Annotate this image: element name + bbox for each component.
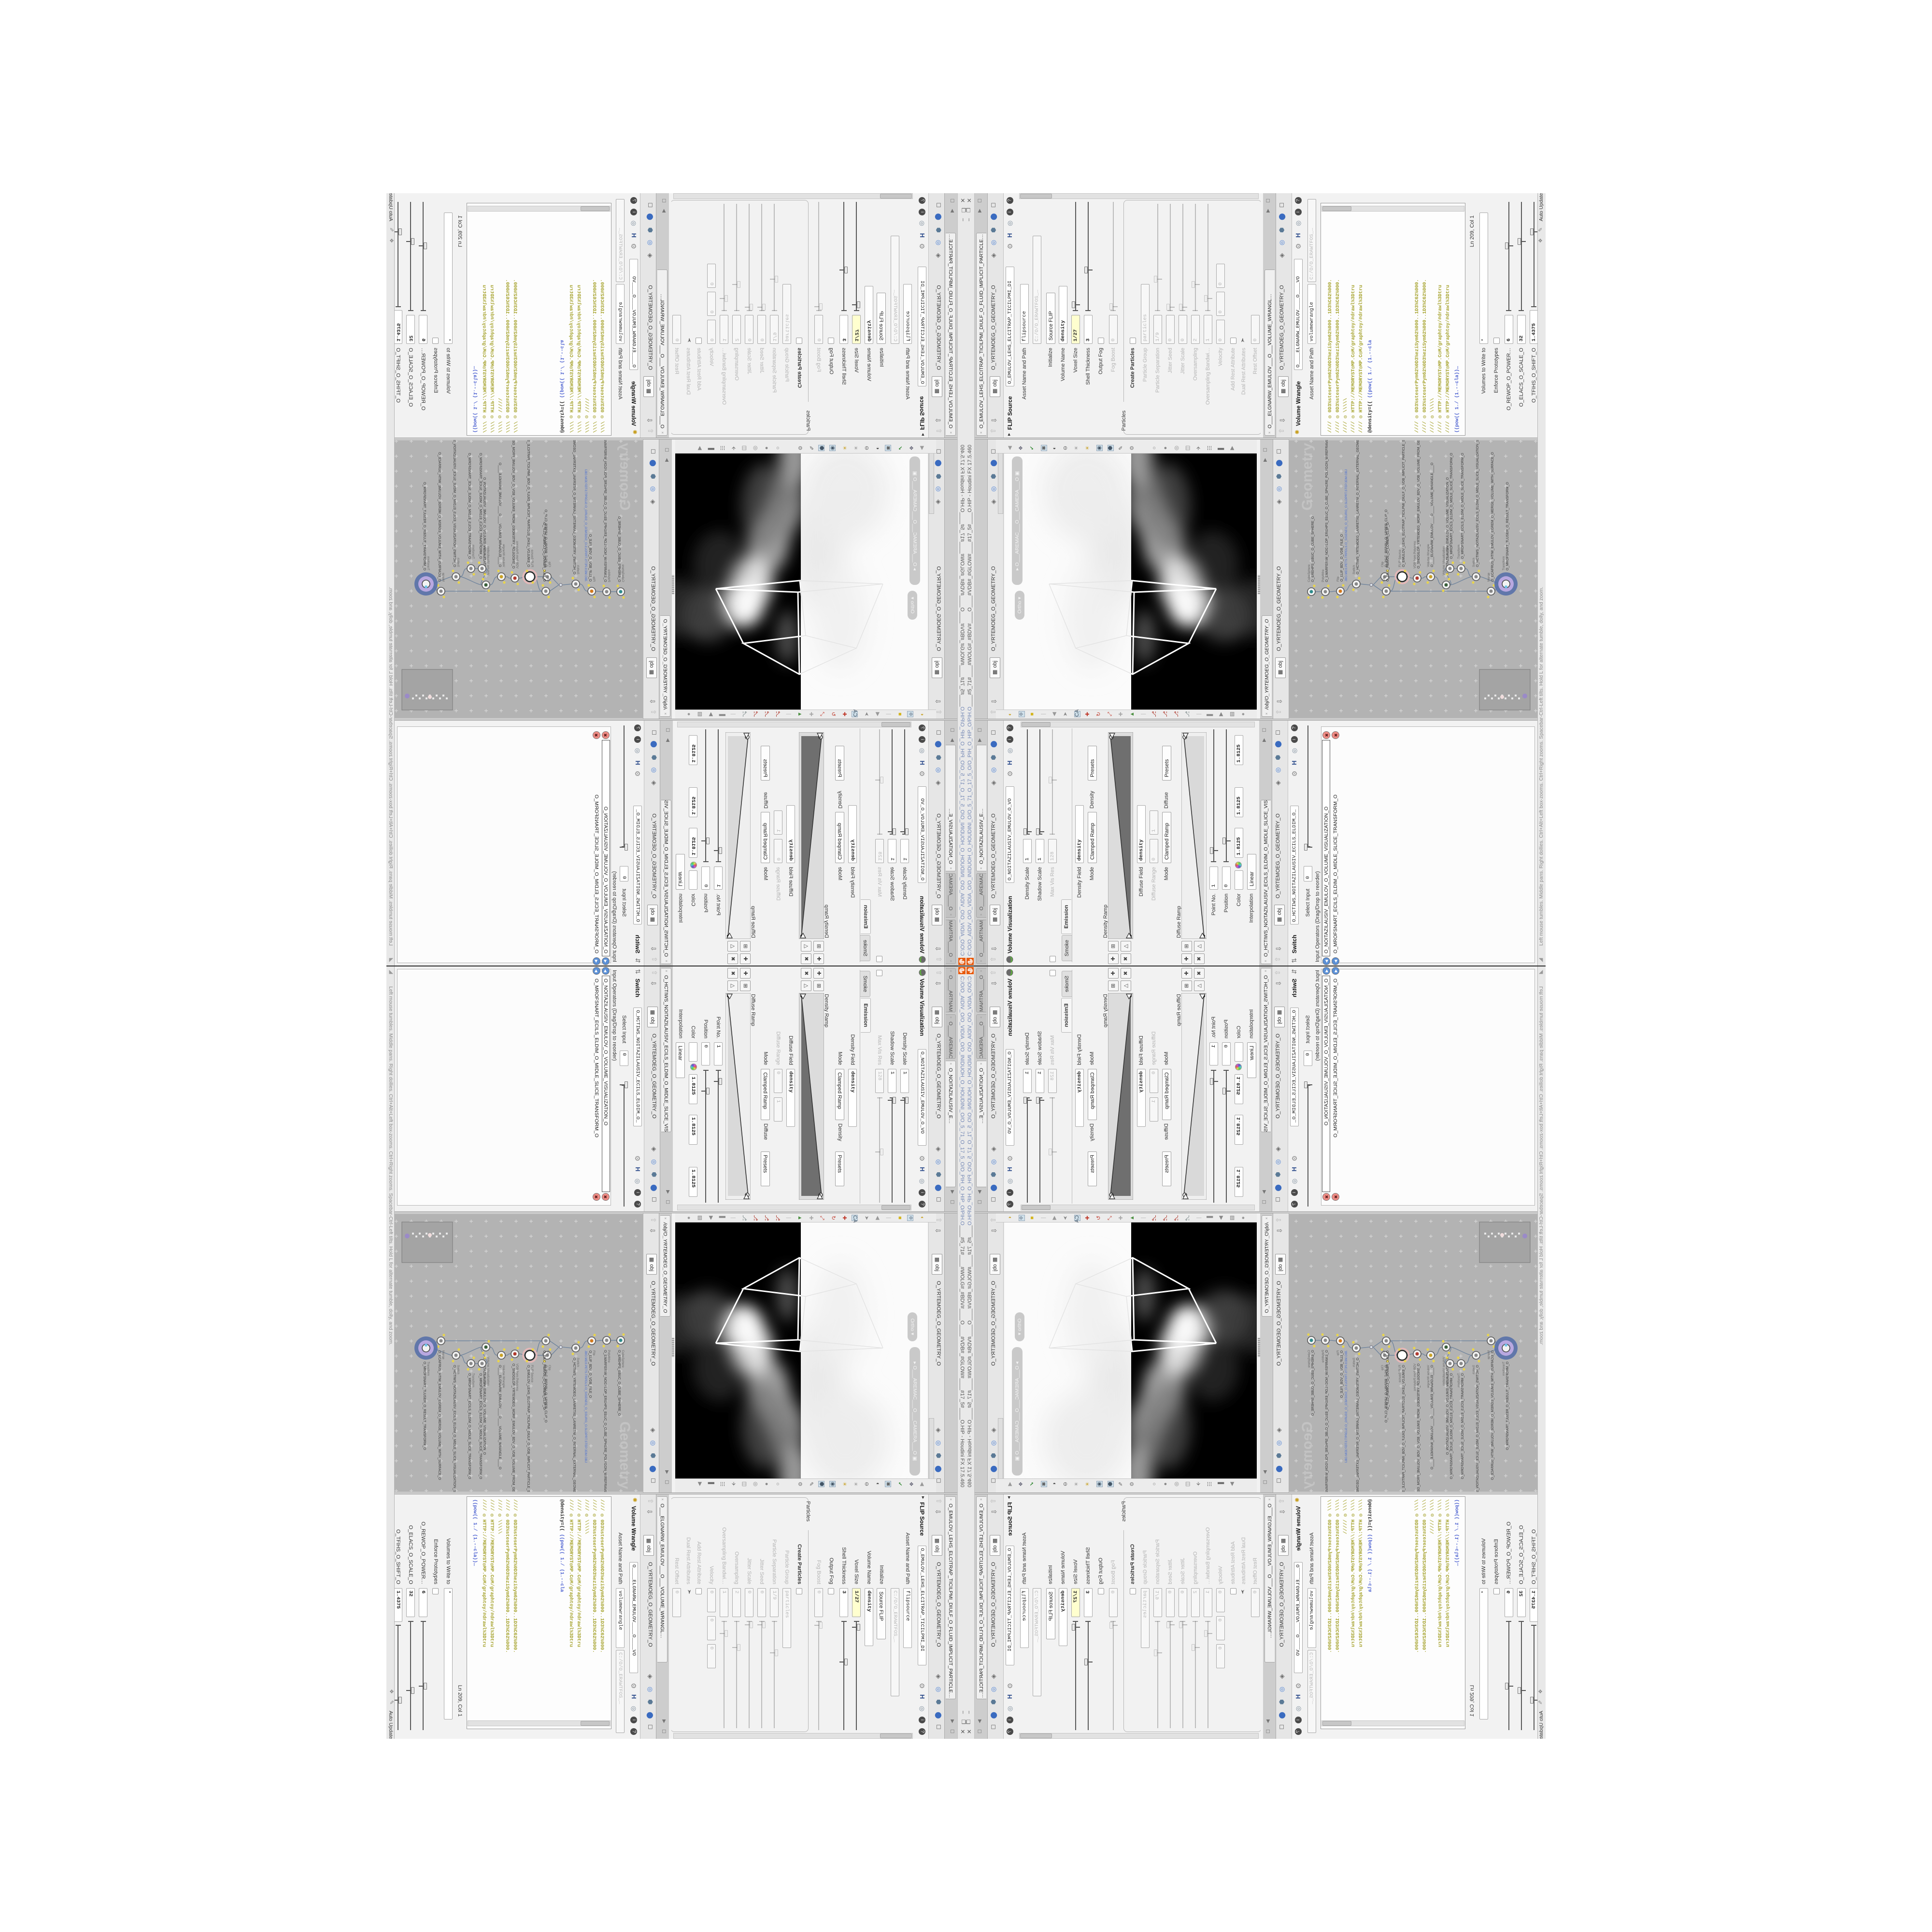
svg-text:FLIP Source: FLIP Source [1398, 1365, 1402, 1382]
svg-text:O_MROFSNART_ECILS_ELDIM_O_MIDL: O_MROFSNART_ECILS_ELDIM_O_MIDLE_SLICE_TR… [1450, 453, 1453, 559]
svg-text:O_EREHPS_EBUC_O_CUBE_SPHERE_O: O_EREHPS_EBUC_O_CUBE_SPHERE_O [617, 516, 621, 582]
svg-text:Transform: Transform [1446, 545, 1449, 559]
svg-text:CubeSphere: CubeSphere [621, 564, 625, 582]
svg-text:O_HCTIWS_YRTEMOEG_LANRETXE_LAN: O_HCTIWS_YRTEMOEG_LANRETXE_LANRETNI_O_IN… [1356, 1358, 1360, 1492]
svg-text:File: File [1336, 1350, 1340, 1356]
svg-text:O_EREHPS_EBUC_O_CUBE_SPHERE_O: O_EREHPS_EBUC_O_CUBE_SPHERE_O [1311, 1350, 1315, 1416]
svg-text:O_HCTIWS_NOITAZILAUSV_ECILS_EL: O_HCTIWS_NOITAZILAUSV_ECILS_ELDIM_O_MIDL… [1476, 1365, 1479, 1492]
svg-text:O_ECAFRUS_HTIW_EMULOV_EGREM_O_: O_ECAFRUS_HTIW_EMULOV_EGREM_O_MERGE_VOLU… [1491, 452, 1494, 582]
svg-text:Switch: Switch [576, 1358, 580, 1367]
svg-text:Switch: Switch [1472, 557, 1476, 567]
svg-text:Transform: Transform [483, 1373, 486, 1387]
svg-text:Switch: Switch [576, 565, 580, 574]
svg-text:Transform: Transform [1502, 556, 1506, 570]
svg-text:O_MROFSNART_ECILS_ELDIM_O_MIDL: O_MROFSNART_ECILS_ELDIM_O_MIDLE_SLICE_TR… [1461, 1373, 1464, 1479]
svg-text:PolyWire: PolyWire [607, 1350, 611, 1363]
svg-text:Volume Visualization: Volume Visualization [486, 1357, 490, 1386]
svg-text:O_MROFSNART_ECILS_ELDIM_O_MIDL: O_MROFSNART_ECILS_ELDIM_O_MIDLE_SLICE_TR… [468, 1373, 471, 1479]
svg-text:Switch: Switch [1352, 565, 1356, 574]
svg-text:Clip: Clip [1382, 1350, 1386, 1356]
svg-text:O_HCTIWS_NOITAZILAUSV_ECILS_EL: O_HCTIWS_NOITAZILAUSV_ECILS_ELDIM_O_MIDL… [453, 440, 456, 567]
svg-text:Merge: Merge [1487, 1350, 1491, 1360]
svg-text:JBO.MD3.PETS.TRPDLS.O_SISENEG_: JBO.MD3.PETS.TRPDLS.O_SISENEG_O_SSURG_O.… [1345, 1350, 1348, 1463]
svg-text:O_NOITAZILAUSIV_EMULOV_O_VOLUM: O_NOITAZILAUSIV_EMULOV_O_VOLUME_VISUALIZ… [1446, 477, 1449, 575]
svg-text:O_SNOGILOP_YRTEMOEG_MORF_EMULO: O_SNOGILOP_YRTEMOEG_MORF_EMULOV_BDV_O_VD… [1417, 1364, 1421, 1492]
svg-text:O_EMULOV_LEHS_ELCITRAP_TICILPM: O_EMULOV_LEHS_ELCITRAP_TICILPMI_DIULF_O_… [1402, 1365, 1406, 1492]
svg-text:VDB from Polygons: VDB from Polygons [515, 1364, 519, 1391]
svg-text:O_ELIF_BDV_O_VDB_FILE_O: O_ELIF_BDV_O_VDB_FILE_O [1340, 1350, 1344, 1398]
svg-text:File: File [1336, 576, 1340, 582]
svg-text:O____ELGNARW_EMULOV____O____VO: O____ELGNARW_EMULOV____O____VOLUME_WRANG… [498, 462, 501, 567]
svg-text:Volume Visualization: Volume Visualization [1442, 1357, 1446, 1386]
svg-text:CubeSphere: CubeSphere [1307, 1350, 1311, 1368]
svg-text:File: File [592, 1350, 596, 1356]
svg-text:Merge: Merge [441, 1350, 445, 1360]
svg-text:Clip: Clip [546, 576, 550, 582]
svg-text:O_HCTIWS_NOITAZILAUSV_ECILS_EL: O_HCTIWS_NOITAZILAUSV_ECILS_ELDIM_O_MIDL… [1476, 440, 1479, 567]
svg-text:O_MROFSNART_ECILS_ELDIM_O_MIDL: O_MROFSNART_ECILS_ELDIM_O_MIDLE_SLICE_TR… [1461, 453, 1464, 559]
svg-text:Transform: Transform [471, 1373, 475, 1387]
svg-text:Geometry: Geometry [1299, 1421, 1315, 1489]
svg-text:File: File [592, 576, 596, 582]
svg-text:Volume Visualization: Volume Visualization [1442, 546, 1446, 575]
svg-text:O____ELGNARW_EMULOV____O____VO: O____ELGNARW_EMULOV____O____VOLUME_WRANG… [1431, 1365, 1434, 1470]
svg-text:Transform: Transform [483, 545, 486, 559]
svg-text:O_EMARFERIW_NOGYLOP_EREHPS_EBU: O_EMARFERIW_NOGYLOP_EREHPS_EBUC_O_CUBE_S… [1325, 440, 1329, 582]
svg-text:Clip: Clip [548, 561, 551, 567]
svg-text:O_EMULOV_LEHS_ELCITRAP_TICILPM: O_EMULOV_LEHS_ELCITRAP_TICILPMI_DIULF_O_… [1402, 440, 1406, 567]
svg-text:O_NOITAZILAUSIV_EMULOV_O_VOLUM: O_NOITAZILAUSIV_EMULOV_O_VOLUME_VISUALIZ… [1446, 1357, 1449, 1455]
svg-text:Switch: Switch [1472, 1365, 1476, 1375]
svg-text:O_MROFSNART_ECILS_ELDIM_O_MIDL: O_MROFSNART_ECILS_ELDIM_O_MIDLE_SLICE_TR… [479, 453, 482, 559]
svg-text:O_ELIF_BDV_O_VDB_FILE_O: O_ELIF_BDV_O_VDB_FILE_O [588, 534, 592, 582]
svg-text:Volume Wrangle: Volume Wrangle [502, 1365, 505, 1388]
svg-text:Clip: Clip [1382, 576, 1386, 582]
svg-text:Transform: Transform [1457, 545, 1461, 559]
svg-text:Volume Wrangle: Volume Wrangle [1427, 544, 1430, 567]
svg-text:Clip: Clip [1381, 561, 1384, 567]
svg-text:O_ECAFRUS_HTIW_EMULOV_EGREM_O_: O_ECAFRUS_HTIW_EMULOV_EGREM_O_MERGE_VOLU… [438, 452, 441, 582]
svg-text:O_HCTIWS_YRTEMOEG_LANRETXE_LAN: O_HCTIWS_YRTEMOEG_LANRETXE_LANRETNI_O_IN… [572, 440, 576, 574]
svg-text:O_MROFSNART_ECILS_ELDIM_O_MIDL: O_MROFSNART_ECILS_ELDIM_O_MIDLE_SLICE_TR… [479, 1373, 482, 1479]
svg-text:Volume Wrangle: Volume Wrangle [1427, 1365, 1430, 1388]
svg-text:Switch: Switch [456, 1365, 460, 1375]
svg-text:FLIP Source: FLIP Source [530, 1365, 534, 1382]
svg-text:Volume Visualization: Volume Visualization [486, 546, 490, 575]
svg-text:Clip: Clip [548, 1365, 551, 1371]
svg-text:Switch: Switch [1352, 1358, 1356, 1367]
svg-text:VDB from Polygons: VDB from Polygons [515, 541, 519, 568]
svg-text:VDB from Polygons: VDB from Polygons [1413, 541, 1417, 568]
svg-text:O____ELGNARW_EMULOV____O____VO: O____ELGNARW_EMULOV____O____VOLUME_WRANG… [498, 1365, 501, 1470]
svg-text:Geometry: Geometry [617, 443, 633, 511]
svg-text:Merge: Merge [1487, 572, 1491, 582]
svg-text:O_PILC_REWOL_O_LOWER_CLIP_O: O_PILC_REWOL_O_LOWER_CLIP_O [1386, 522, 1390, 582]
svg-text:FLIP Source: FLIP Source [1398, 550, 1402, 567]
svg-text:CubeSphere: CubeSphere [1307, 564, 1311, 582]
svg-text:O_SNOGILOP_YRTEMOEG_MORF_EMULO: O_SNOGILOP_YRTEMOEG_MORF_EMULOV_BDV_O_VD… [1417, 440, 1421, 568]
svg-text:Transform: Transform [471, 545, 475, 559]
svg-text:O_ELIF_BDV_O_VDB_FILE_O: O_ELIF_BDV_O_VDB_FILE_O [588, 1350, 592, 1398]
svg-text:O_MROFSNART_TLUSER_O_RESULT_TR: O_MROFSNART_TLUSER_O_RESULT_TRANSFORM_O [1506, 482, 1509, 570]
svg-text:Merge: Merge [441, 572, 445, 582]
svg-text:Switch: Switch [456, 557, 460, 567]
svg-text:O_EREHPS_EBUC_O_CUBE_SPHERE_O: O_EREHPS_EBUC_O_CUBE_SPHERE_O [1311, 516, 1315, 582]
svg-text:O_ECAFRUS_HTIW_EMULOV_EGREM_O_: O_ECAFRUS_HTIW_EMULOV_EGREM_O_MERGE_VOLU… [438, 1350, 441, 1480]
svg-text:O_HCTIWS_NOITAZILAUSV_ECILS_EL: O_HCTIWS_NOITAZILAUSV_ECILS_ELDIM_O_MIDL… [453, 1365, 456, 1492]
svg-text:O_HCTIWS_YRTEMOEG_LANRETXE_LAN: O_HCTIWS_YRTEMOEG_LANRETXE_LANRETNI_O_IN… [1356, 440, 1360, 574]
svg-text:JBO.MD3.PETS.TRPDLS.O_SISENEG_: JBO.MD3.PETS.TRPDLS.O_SISENEG_O_SSURG_O.… [584, 469, 587, 582]
svg-text:Geometry: Geometry [617, 1421, 633, 1489]
svg-text:Transform: Transform [426, 556, 430, 570]
svg-text:Transform: Transform [1457, 1373, 1461, 1387]
svg-text:Transform: Transform [1502, 1362, 1506, 1376]
svg-text:O_EMARFERIW_NOGYLOP_EREHPS_EBU: O_EMARFERIW_NOGYLOP_EREHPS_EBUC_O_CUBE_S… [1325, 1350, 1329, 1492]
svg-text:O____ELGNARW_EMULOV____O____VO: O____ELGNARW_EMULOV____O____VOLUME_WRANG… [1431, 462, 1434, 567]
svg-text:PolyWire: PolyWire [1321, 569, 1325, 582]
svg-text:Transform: Transform [1446, 1373, 1449, 1387]
svg-text:Clip: Clip [1381, 1365, 1384, 1371]
svg-text:O_PILC_REWOL_O_LOWER_CLIP_O: O_PILC_REWOL_O_LOWER_CLIP_O [542, 1350, 546, 1410]
svg-text:FLIP Source: FLIP Source [530, 550, 534, 567]
svg-text:PolyWire: PolyWire [1321, 1350, 1325, 1363]
svg-text:O_EREHPS_EBUC_O_CUBE_SPHERE_O: O_EREHPS_EBUC_O_CUBE_SPHERE_O [617, 1350, 621, 1416]
svg-text:O_MROFSNART_ECILS_ELDIM_O_MIDL: O_MROFSNART_ECILS_ELDIM_O_MIDLE_SLICE_TR… [1450, 1373, 1453, 1479]
svg-text:O_PILC_REWOL_O_LOWER_CLIP_O: O_PILC_REWOL_O_LOWER_CLIP_O [542, 522, 546, 582]
svg-text:O_MROFSNART_ECILS_ELDIM_O_MIDL: O_MROFSNART_ECILS_ELDIM_O_MIDLE_SLICE_TR… [468, 453, 471, 559]
svg-text:O_ECAFRUS_HTIW_EMULOV_EGREM_O_: O_ECAFRUS_HTIW_EMULOV_EGREM_O_MERGE_VOLU… [1491, 1350, 1494, 1480]
svg-text:O_HCTIWS_YRTEMOEG_LANRETXE_LAN: O_HCTIWS_YRTEMOEG_LANRETXE_LANRETNI_O_IN… [572, 1358, 576, 1492]
svg-text:O_SNOGILOP_YRTEMOEG_MORF_EMULO: O_SNOGILOP_YRTEMOEG_MORF_EMULOV_BDV_O_VD… [511, 440, 515, 568]
svg-text:O_NOITAZILAUSIV_EMULOV_O_VOLUM: O_NOITAZILAUSIV_EMULOV_O_VOLUME_VISUALIZ… [483, 477, 486, 575]
svg-text:O_ELIF_BDV_O_VDB_FILE_O: O_ELIF_BDV_O_VDB_FILE_O [1340, 534, 1344, 582]
svg-text:O_SNOGILOP_YRTEMOEG_MORF_EMULO: O_SNOGILOP_YRTEMOEG_MORF_EMULOV_BDV_O_VD… [511, 1364, 515, 1492]
svg-text:CubeSphere: CubeSphere [621, 1350, 625, 1368]
svg-text:JBO.MD3.PETS.TRPDLS.O_SISENEG_: JBO.MD3.PETS.TRPDLS.O_SISENEG_O_SSURG_O.… [1345, 469, 1348, 582]
svg-text:Volume Wrangle: Volume Wrangle [502, 544, 505, 567]
svg-text:Transform: Transform [426, 1362, 430, 1376]
svg-text:Geometry: Geometry [1299, 443, 1315, 511]
svg-text:O_NOITAZILAUSIV_EMULOV_O_VOLUM: O_NOITAZILAUSIV_EMULOV_O_VOLUME_VISUALIZ… [483, 1357, 486, 1455]
svg-text:O_EMARFERIW_NOGYLOP_EREHPS_EBU: O_EMARFERIW_NOGYLOP_EREHPS_EBUC_O_CUBE_S… [603, 440, 607, 582]
svg-text:O_MROFSNART_TLUSER_O_RESULT_TR: O_MROFSNART_TLUSER_O_RESULT_TRANSFORM_O [1506, 1362, 1509, 1450]
svg-text:PolyWire: PolyWire [607, 569, 611, 582]
svg-text:O_MROFSNART_TLUSER_O_RESULT_TR: O_MROFSNART_TLUSER_O_RESULT_TRANSFORM_O [423, 482, 426, 570]
svg-text:O_EMULOV_LEHS_ELCITRAP_TICILPM: O_EMULOV_LEHS_ELCITRAP_TICILPMI_DIULF_O_… [526, 1365, 530, 1492]
svg-text:VDB from Polygons: VDB from Polygons [1413, 1364, 1417, 1391]
svg-text:O_PILC_REWOL_O_LOWER_CLIP_O: O_PILC_REWOL_O_LOWER_CLIP_O [1386, 1350, 1390, 1410]
svg-text:O_MROFSNART_TLUSER_O_RESULT_TR: O_MROFSNART_TLUSER_O_RESULT_TRANSFORM_O [423, 1362, 426, 1450]
svg-text:Clip: Clip [546, 1350, 550, 1356]
svg-text:O_EMULOV_LEHS_ELCITRAP_TICILPM: O_EMULOV_LEHS_ELCITRAP_TICILPMI_DIULF_O_… [526, 440, 530, 567]
svg-text:JBO.MD3.PETS.TRPDLS.O_SISENEG_: JBO.MD3.PETS.TRPDLS.O_SISENEG_O_SSURG_O.… [584, 1350, 587, 1463]
svg-text:O_EMARFERIW_NOGYLOP_EREHPS_EBU: O_EMARFERIW_NOGYLOP_EREHPS_EBUC_O_CUBE_S… [603, 1350, 607, 1492]
